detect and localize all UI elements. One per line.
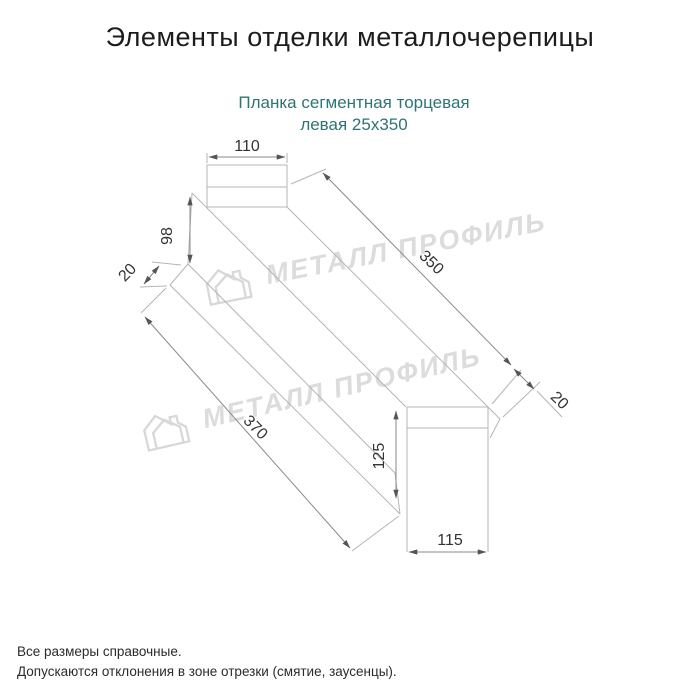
dimension-label-115: 115	[437, 532, 463, 549]
footnote-line1: Все размеры справочные.	[17, 642, 397, 662]
dimension-left-flange: 20	[115, 260, 159, 285]
house-logo-icon	[205, 265, 252, 305]
dimension-label-20-left: 20	[115, 260, 140, 285]
watermark-text: МЕТАЛЛ ПРОФИЛЬ	[263, 206, 548, 290]
spec-sheet-page: Элементы отделки металлочерепицы Планка …	[0, 0, 700, 700]
watermark-1: МЕТАЛЛ ПРОФИЛЬ	[205, 206, 550, 304]
house-logo-icon	[142, 410, 190, 451]
dimension-label-20-right: 20	[547, 388, 572, 413]
dimension-label-110: 110	[234, 138, 260, 155]
dimension-top-width: 110	[209, 138, 285, 157]
dimension-bottom-width: 115	[409, 532, 486, 552]
watermark-2: МЕТАЛЛ ПРОФИЛЬ	[141, 341, 484, 451]
dimension-label-125: 125	[371, 443, 388, 470]
dimension-left-face-height: 98	[159, 197, 190, 263]
dimension-right-face-height: 125	[371, 411, 396, 498]
footnote-line2: Допускаются отклонения в зоне отрезки (с…	[17, 662, 397, 682]
technical-drawing: МЕТАЛЛ ПРОФИЛЬ МЕТАЛЛ ПРОФИЛЬ	[0, 0, 700, 700]
dimension-length-bottom: 370	[145, 317, 350, 548]
dimension-label-98: 98	[159, 227, 176, 245]
footnotes: Все размеры справочные. Допускаются откл…	[17, 642, 397, 682]
dimension-right-flange: 20	[514, 369, 572, 413]
